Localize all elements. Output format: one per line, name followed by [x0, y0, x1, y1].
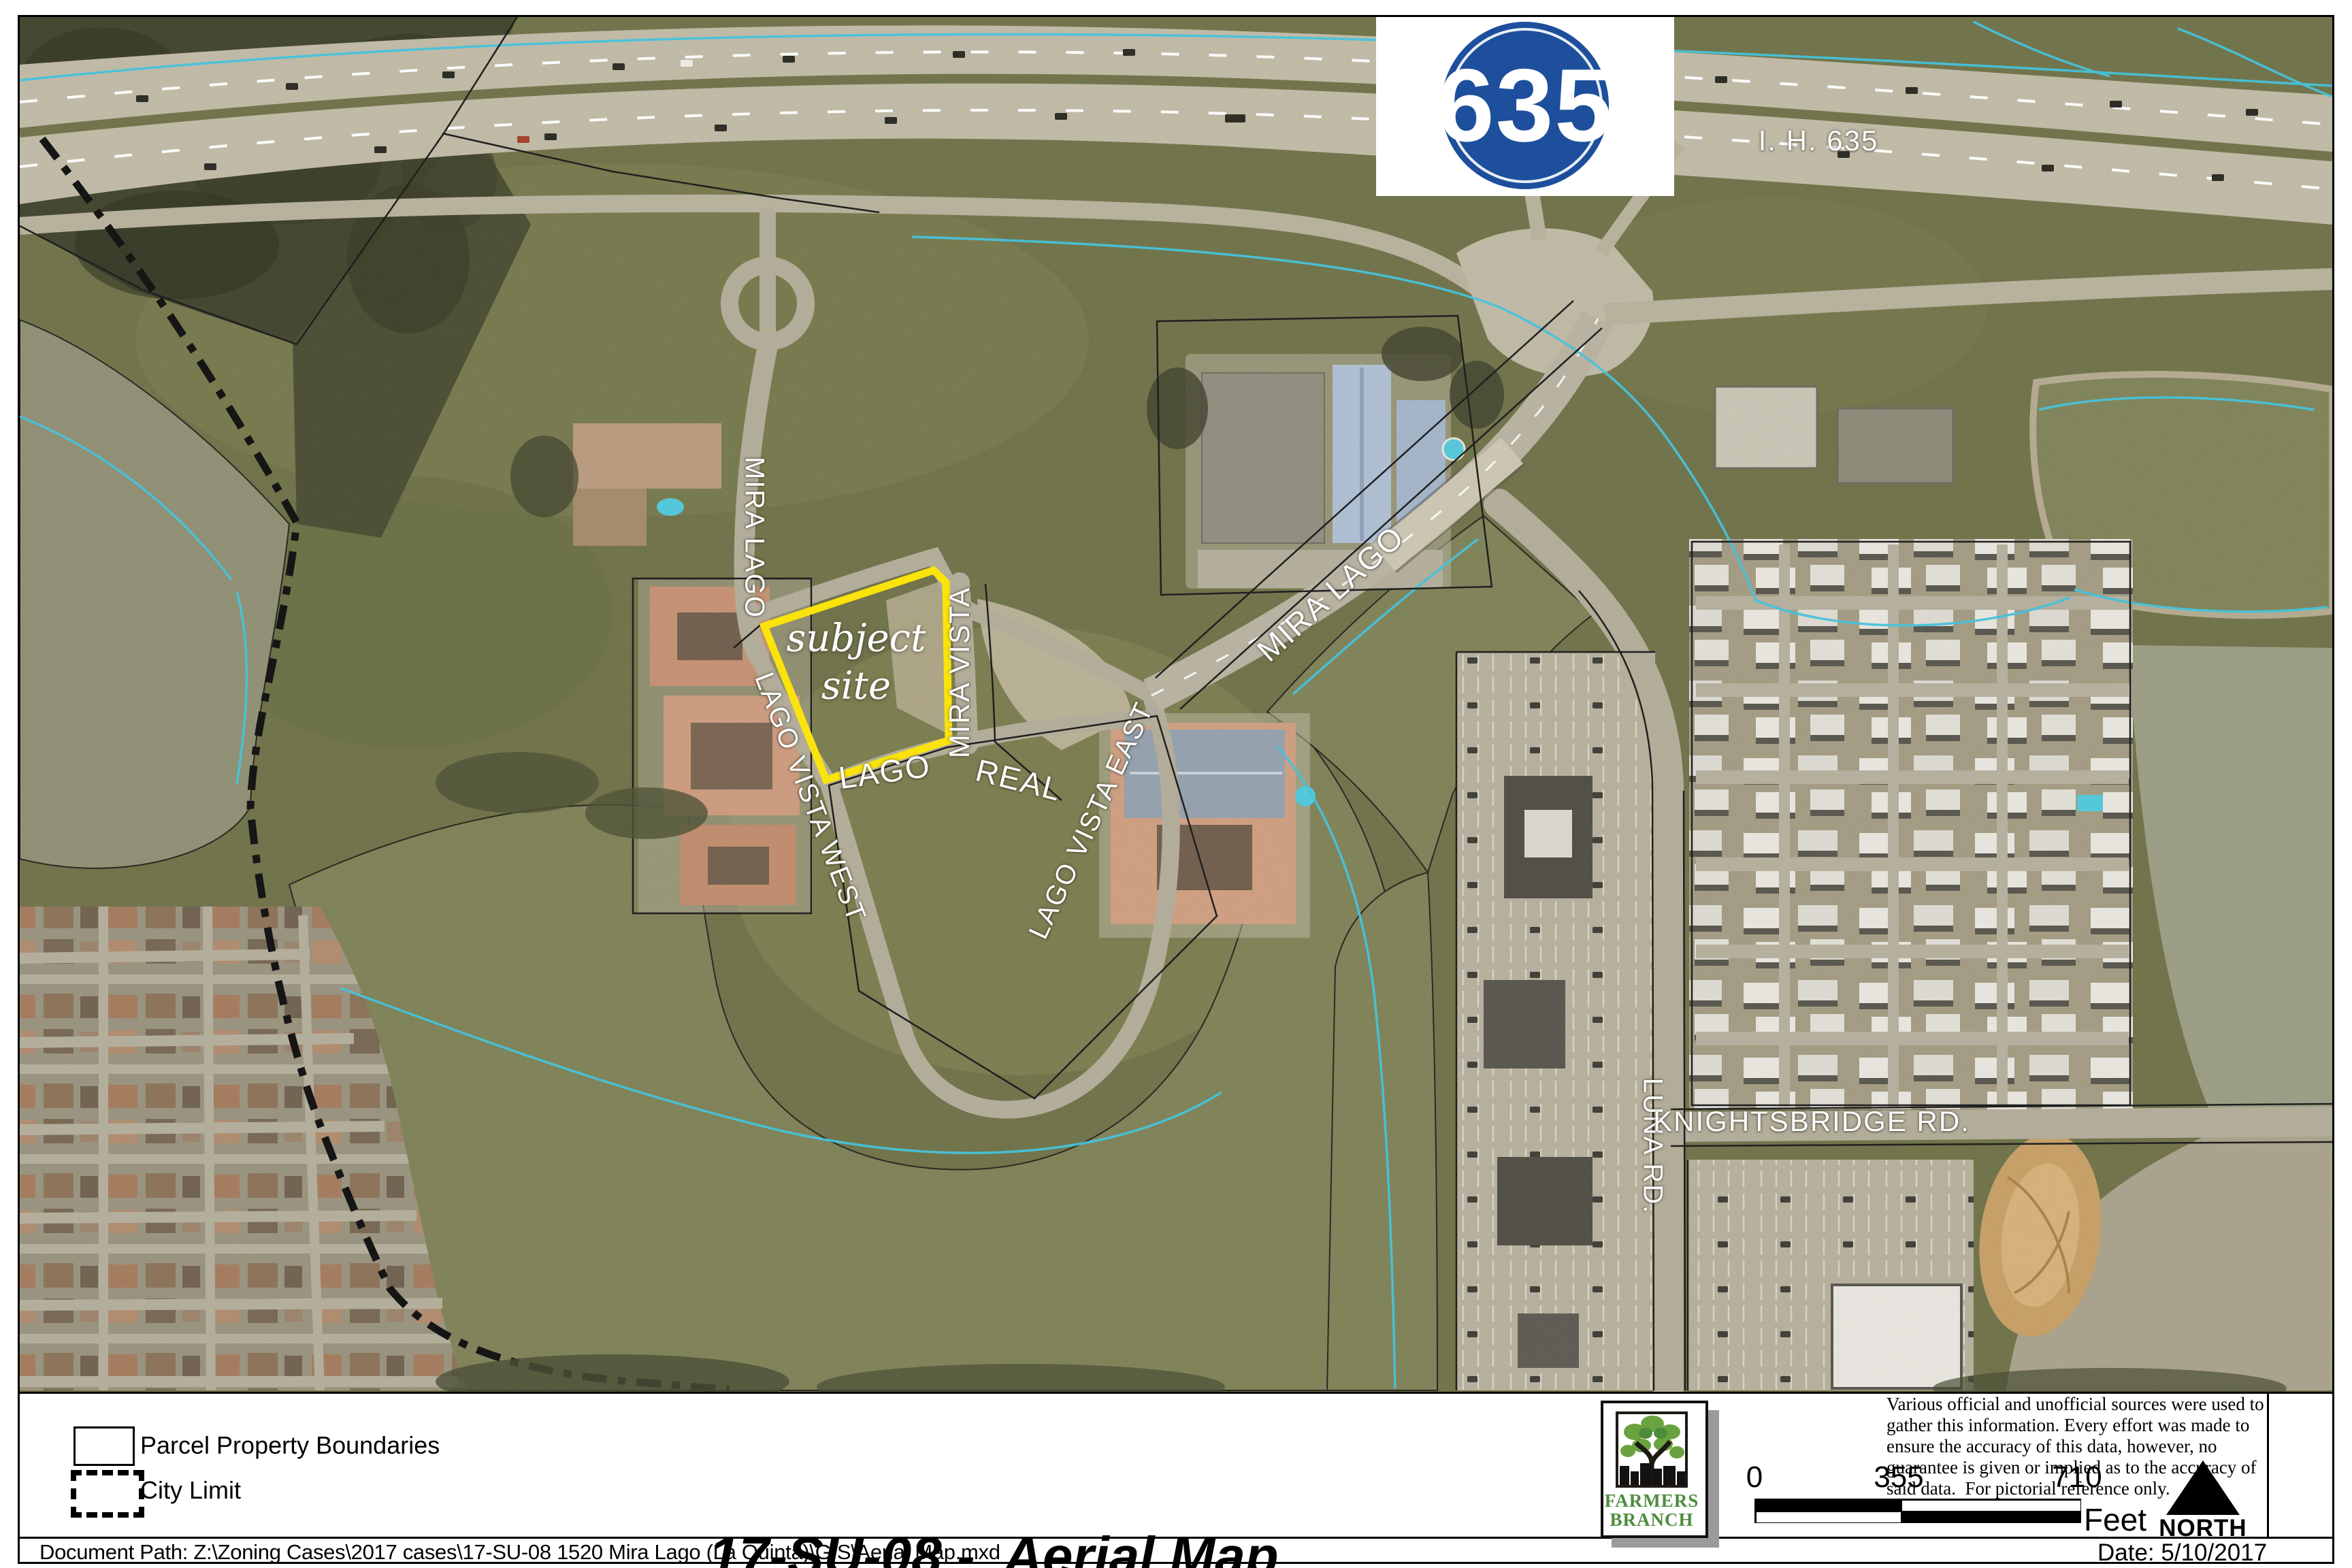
scale-tick-0: 0	[1746, 1460, 1763, 1494]
north-label: NORTH	[2159, 1515, 2247, 1542]
scale-unit-label: Feet	[2084, 1501, 2146, 1538]
scale-tick-355: 355	[1874, 1460, 1923, 1494]
north-arrow-icon	[2166, 1460, 2240, 1515]
date-label: Date: 5/10/2017	[2097, 1539, 2267, 1567]
scale-tick-710: 710	[2052, 1460, 2102, 1494]
sheet-border	[18, 15, 2334, 1564]
scale-bar	[1754, 1499, 2081, 1523]
logo-text-line1: FARMERS	[1605, 1490, 1699, 1511]
legend-label-city-limit: City Limit	[140, 1476, 241, 1505]
legend-label-parcel: Parcel Property Boundaries	[140, 1431, 440, 1460]
map-sheet: I. H. 635 MIRA LAGO MIRA LAGO MIRA VISTA…	[0, 0, 2352, 1568]
tree-icon: FARMERS BRANCH	[1603, 1403, 1700, 1530]
legend-swatch-parcel	[73, 1426, 135, 1466]
farmers-branch-logo: FARMERS BRANCH	[1601, 1401, 1708, 1538]
document-path: Document Path: Z:\Zoning Cases\2017 case…	[39, 1540, 1000, 1565]
logo-text-line2: BRANCH	[1610, 1509, 1693, 1530]
legend-swatch-city-limit	[71, 1470, 144, 1518]
